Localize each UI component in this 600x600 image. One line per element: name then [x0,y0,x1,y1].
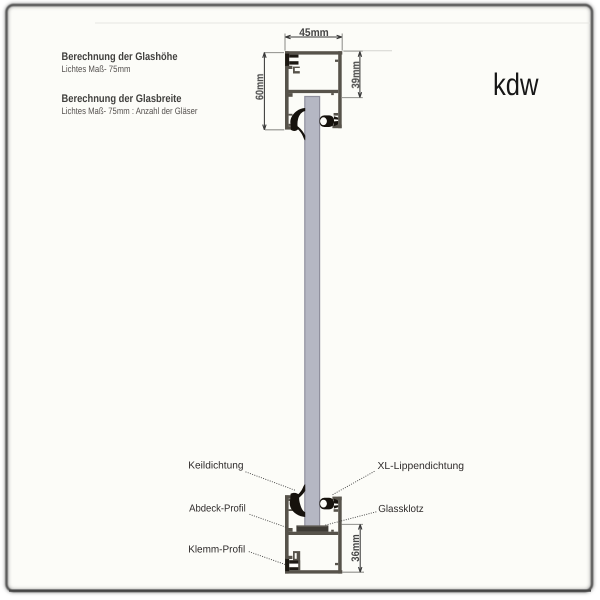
svg-text:Berechnung der Glashöhe: Berechnung der Glashöhe [62,51,178,63]
svg-text:XL-Lippendichtung: XL-Lippendichtung [378,461,465,472]
svg-text:60mm: 60mm [254,74,266,100]
svg-text:Abdeck-Profil: Abdeck-Profil [189,504,246,515]
svg-text:Keildichtung: Keildichtung [188,460,244,471]
svg-text:36mm: 36mm [350,534,362,562]
svg-text:39mm: 39mm [350,61,362,89]
svg-text:Berechnung der Glasbreite: Berechnung der Glasbreite [62,93,182,105]
svg-text:Klemm-Profil: Klemm-Profil [188,545,245,556]
svg-text:Glassklotz: Glassklotz [378,504,424,515]
svg-text:45mm: 45mm [299,27,329,39]
svg-text:kdw: kdw [493,67,539,102]
svg-text:Lichtes Maß- 75mm : Anzahl der: Lichtes Maß- 75mm : Anzahl der Gläser [62,106,198,116]
svg-text:Lichtes Maß- 75mm: Lichtes Maß- 75mm [62,64,131,74]
